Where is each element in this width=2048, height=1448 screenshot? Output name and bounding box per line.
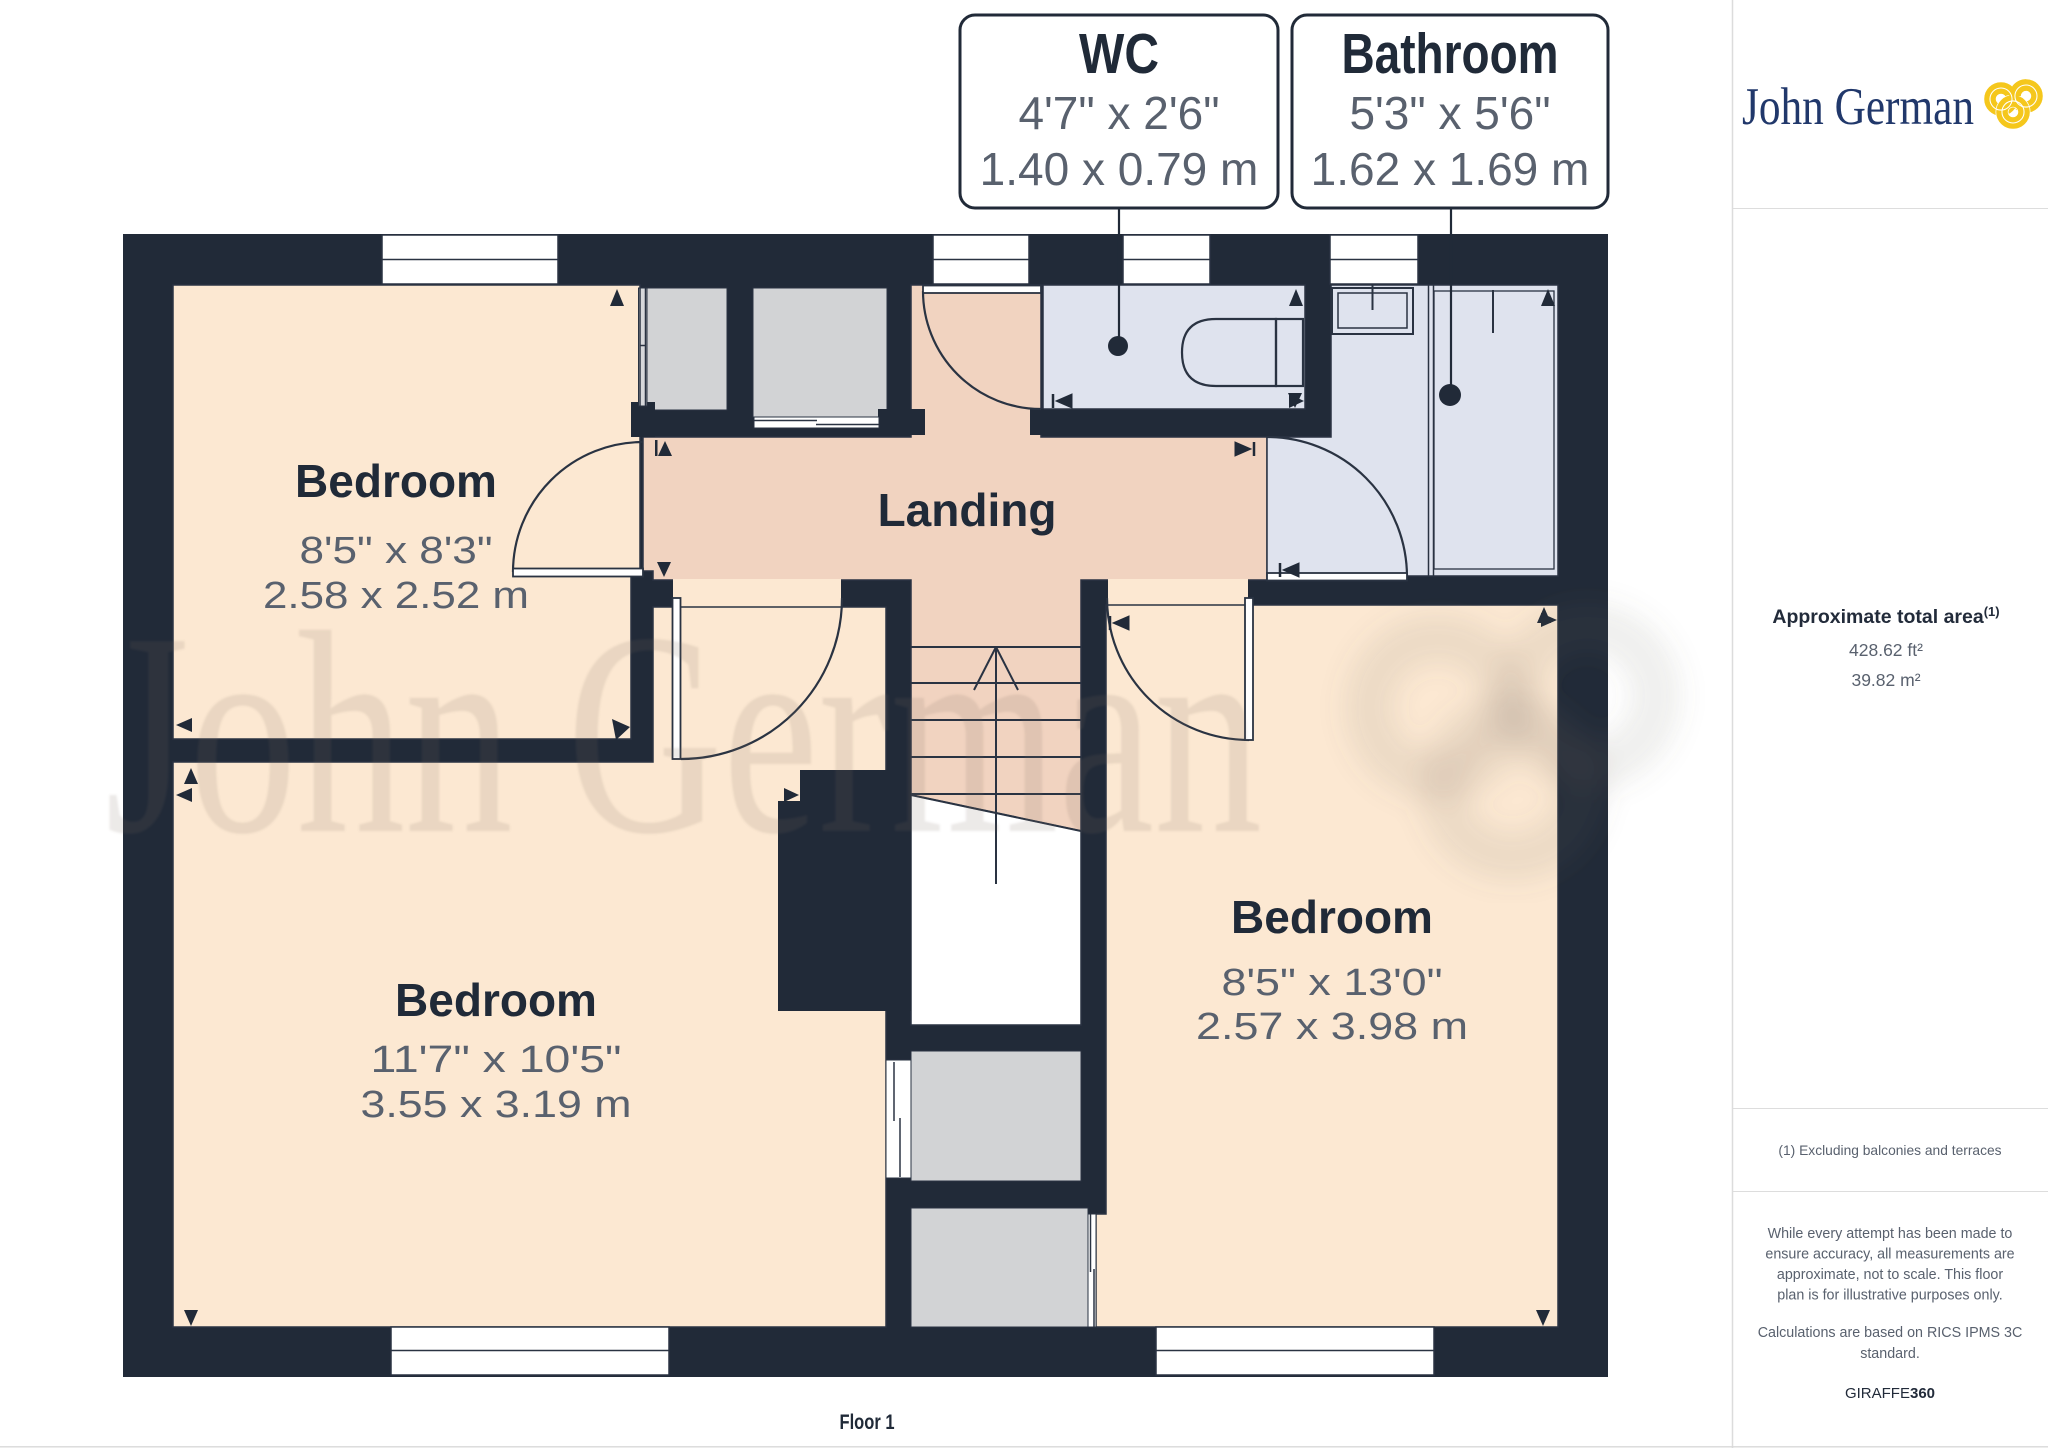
svg-text:428.62 ft²: 428.62 ft² xyxy=(1849,640,1923,660)
svg-text:Bathroom: Bathroom xyxy=(1342,22,1559,86)
svg-text:Bedroom: Bedroom xyxy=(395,974,597,1026)
svg-text:5'3" x 5'6": 5'3" x 5'6" xyxy=(1349,87,1550,139)
svg-text:1.62 x 1.69 m: 1.62 x 1.69 m xyxy=(1311,143,1590,195)
svg-text:Bedroom: Bedroom xyxy=(1231,891,1433,943)
svg-text:39.82 m²: 39.82 m² xyxy=(1851,670,1920,690)
svg-text:2.57 x 3.98 m: 2.57 x 3.98 m xyxy=(1196,1006,1468,1048)
svg-text:John German: John German xyxy=(1742,78,1974,136)
svg-text:3.55 x 3.19 m: 3.55 x 3.19 m xyxy=(361,1084,632,1126)
svg-text:(1) Excluding balconies and te: (1) Excluding balconies and terraces xyxy=(1778,1143,2001,1158)
svg-text:WC: WC xyxy=(1079,22,1159,86)
svg-text:11'7" x 10'5": 11'7" x 10'5" xyxy=(371,1039,622,1081)
svg-text:approximate, not to scale. Thi: approximate, not to scale. This floor xyxy=(1777,1267,2003,1283)
svg-text:Landing: Landing xyxy=(878,484,1057,536)
svg-text:ensure accuracy, all measureme: ensure accuracy, all measurements are xyxy=(1765,1247,2014,1263)
svg-text:John German: John German xyxy=(105,573,1262,894)
svg-text:While every attempt has been m: While every attempt has been made to xyxy=(1768,1226,2013,1242)
svg-text:Bedroom: Bedroom xyxy=(295,455,497,507)
svg-text:8'5" x 8'3": 8'5" x 8'3" xyxy=(300,530,493,572)
svg-text:4'7" x 2'6": 4'7" x 2'6" xyxy=(1018,87,1219,139)
svg-text:8'5" x 13'0": 8'5" x 13'0" xyxy=(1222,962,1443,1004)
svg-text:Calculations are based on RICS: Calculations are based on RICS IPMS 3C xyxy=(1758,1325,2023,1341)
svg-text:plan is for illustrative purpo: plan is for illustrative purposes only. xyxy=(1777,1288,2002,1304)
svg-text:1.40 x 0.79 m: 1.40 x 0.79 m xyxy=(980,143,1259,195)
svg-text:standard.: standard. xyxy=(1860,1346,1920,1362)
svg-text:Floor 1: Floor 1 xyxy=(840,1411,895,1434)
svg-text:Approximate total area(1): Approximate total area(1) xyxy=(1772,604,1999,628)
svg-text:GIRAFFE360: GIRAFFE360 xyxy=(1845,1385,1935,1402)
